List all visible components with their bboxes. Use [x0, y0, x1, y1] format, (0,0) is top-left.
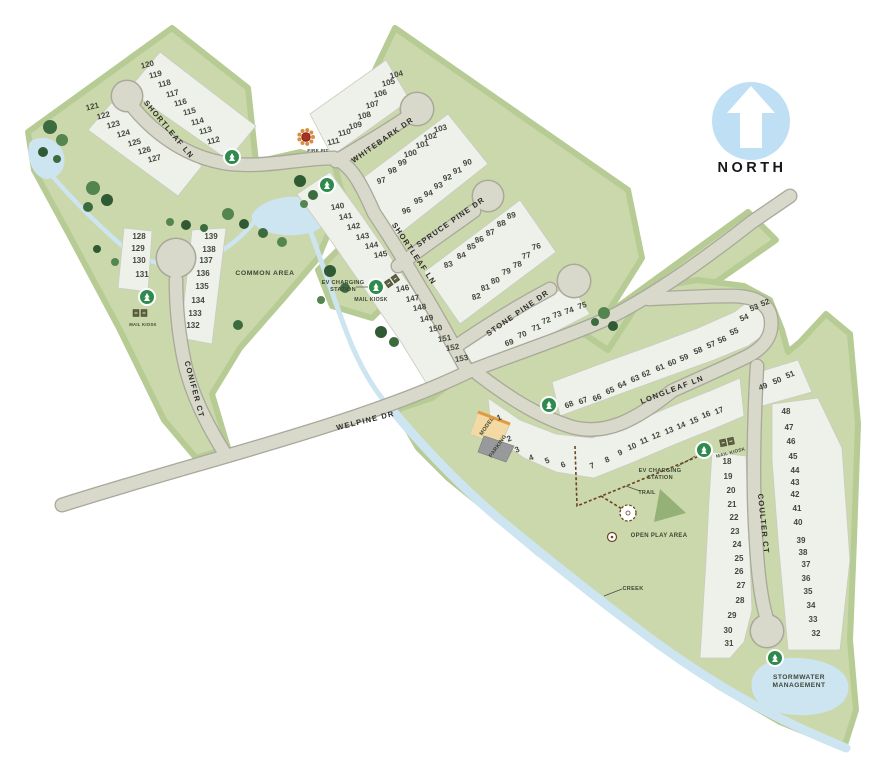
site-plan-svg: 1201191181171161151141131121211221231241… [0, 0, 878, 768]
lot-number-39: 39 [797, 536, 806, 545]
lot-number-25: 25 [735, 554, 744, 563]
lot-number-136: 136 [196, 269, 210, 278]
lot-number-31: 31 [725, 639, 734, 648]
tree-icon [86, 181, 100, 195]
tree-icon [200, 224, 208, 232]
lot-number-18: 18 [723, 457, 732, 466]
tree-icon [258, 228, 268, 238]
label-trail: TRAIL [638, 490, 656, 496]
tree-icon [375, 326, 387, 338]
amenity-marker-icon [224, 149, 240, 165]
tree-icon [53, 155, 61, 163]
lot-number-133: 133 [188, 309, 202, 318]
tree-icon [294, 175, 306, 187]
lot-number-135: 135 [195, 282, 209, 291]
north-label: NORTH [717, 160, 786, 176]
tree-icon [598, 307, 610, 319]
label-mail-kiosk-conifer: MAIL KIOSK [129, 322, 157, 327]
lot-number-41: 41 [793, 504, 802, 513]
label-open-play-area: OPEN PLAY AREA [631, 533, 688, 539]
tree-icon [38, 147, 48, 157]
lot-number-134: 134 [191, 296, 205, 305]
north-indicator: NORTH [712, 82, 790, 176]
tree-icon [608, 321, 618, 331]
tree-icon [591, 318, 599, 326]
lot-number-24: 24 [733, 540, 742, 549]
label-fire-pit: FIRE PIT [307, 148, 328, 153]
lot-number-36: 36 [802, 574, 811, 583]
label-creek: CREEK [622, 586, 643, 592]
lot-number-138: 138 [202, 245, 216, 254]
amenity-marker-icon [139, 289, 155, 305]
tree-icon [222, 208, 234, 220]
lot-number-26: 26 [735, 567, 744, 576]
tree-icon [239, 219, 249, 229]
lot-number-129: 129 [131, 244, 145, 253]
lot-number-137: 137 [199, 256, 213, 265]
lot-number-30: 30 [724, 626, 733, 635]
tree-icon [93, 245, 101, 253]
amenity-marker-icon [696, 442, 712, 458]
lot-number-20: 20 [727, 486, 736, 495]
label-common-area: COMMON AREA [235, 270, 294, 277]
tree-icon [181, 220, 191, 230]
lot-number-22: 22 [730, 513, 739, 522]
lot-number-27: 27 [737, 581, 746, 590]
lot-number-28: 28 [736, 596, 745, 605]
tree-icon [300, 200, 308, 208]
lot-number-130: 130 [132, 256, 146, 265]
lot-number-32: 32 [812, 629, 821, 638]
tree-icon [83, 202, 93, 212]
tree-icon [389, 337, 399, 347]
lot-number-23: 23 [731, 527, 740, 536]
lot-number-40: 40 [794, 518, 803, 527]
lot-number-21: 21 [728, 500, 737, 509]
lot-number-43: 43 [791, 478, 800, 487]
amenity-marker-icon [319, 177, 335, 193]
fire-pit-icon [297, 128, 315, 146]
lot-number-19: 19 [724, 472, 733, 481]
lot-number-38: 38 [799, 548, 808, 557]
tree-icon [111, 258, 119, 266]
amenity-marker-icon [368, 279, 384, 295]
amenity-marker-icon [541, 397, 557, 413]
lot-number-131: 131 [135, 270, 149, 279]
tree-icon [324, 265, 336, 277]
lot-number-34: 34 [807, 601, 816, 610]
lot-number-47: 47 [785, 423, 794, 432]
tree-icon [166, 218, 174, 226]
lot-number-132: 132 [186, 321, 200, 330]
tree-icon [56, 134, 68, 146]
lot-number-45: 45 [789, 452, 798, 461]
tree-icon [233, 320, 243, 330]
lot-number-44: 44 [791, 466, 800, 475]
lot-number-139: 139 [204, 232, 218, 241]
label-stormwater-management: STORMWATERMANAGEMENT [773, 674, 826, 689]
site-plan-map: 1201191181171161151141131121211221231241… [0, 0, 878, 768]
lot-number-33: 33 [809, 615, 818, 624]
tree-icon [308, 190, 318, 200]
trail-node-center [611, 536, 614, 539]
lot-number-128: 128 [132, 232, 146, 241]
lot-number-37: 37 [802, 560, 811, 569]
tree-icon [277, 237, 287, 247]
lot-number-46: 46 [787, 437, 796, 446]
amenity-marker-icon [767, 650, 783, 666]
lot-number-48: 48 [782, 407, 791, 416]
label-mail-kiosk-left: MAIL KIOSK [354, 297, 387, 303]
tree-icon [101, 194, 113, 206]
lot-number-29: 29 [728, 611, 737, 620]
lot-number-42: 42 [791, 490, 800, 499]
lot-number-35: 35 [804, 587, 813, 596]
tree-icon [43, 120, 57, 134]
trail-gazebo-icon [620, 505, 636, 521]
tree-icon [317, 296, 325, 304]
